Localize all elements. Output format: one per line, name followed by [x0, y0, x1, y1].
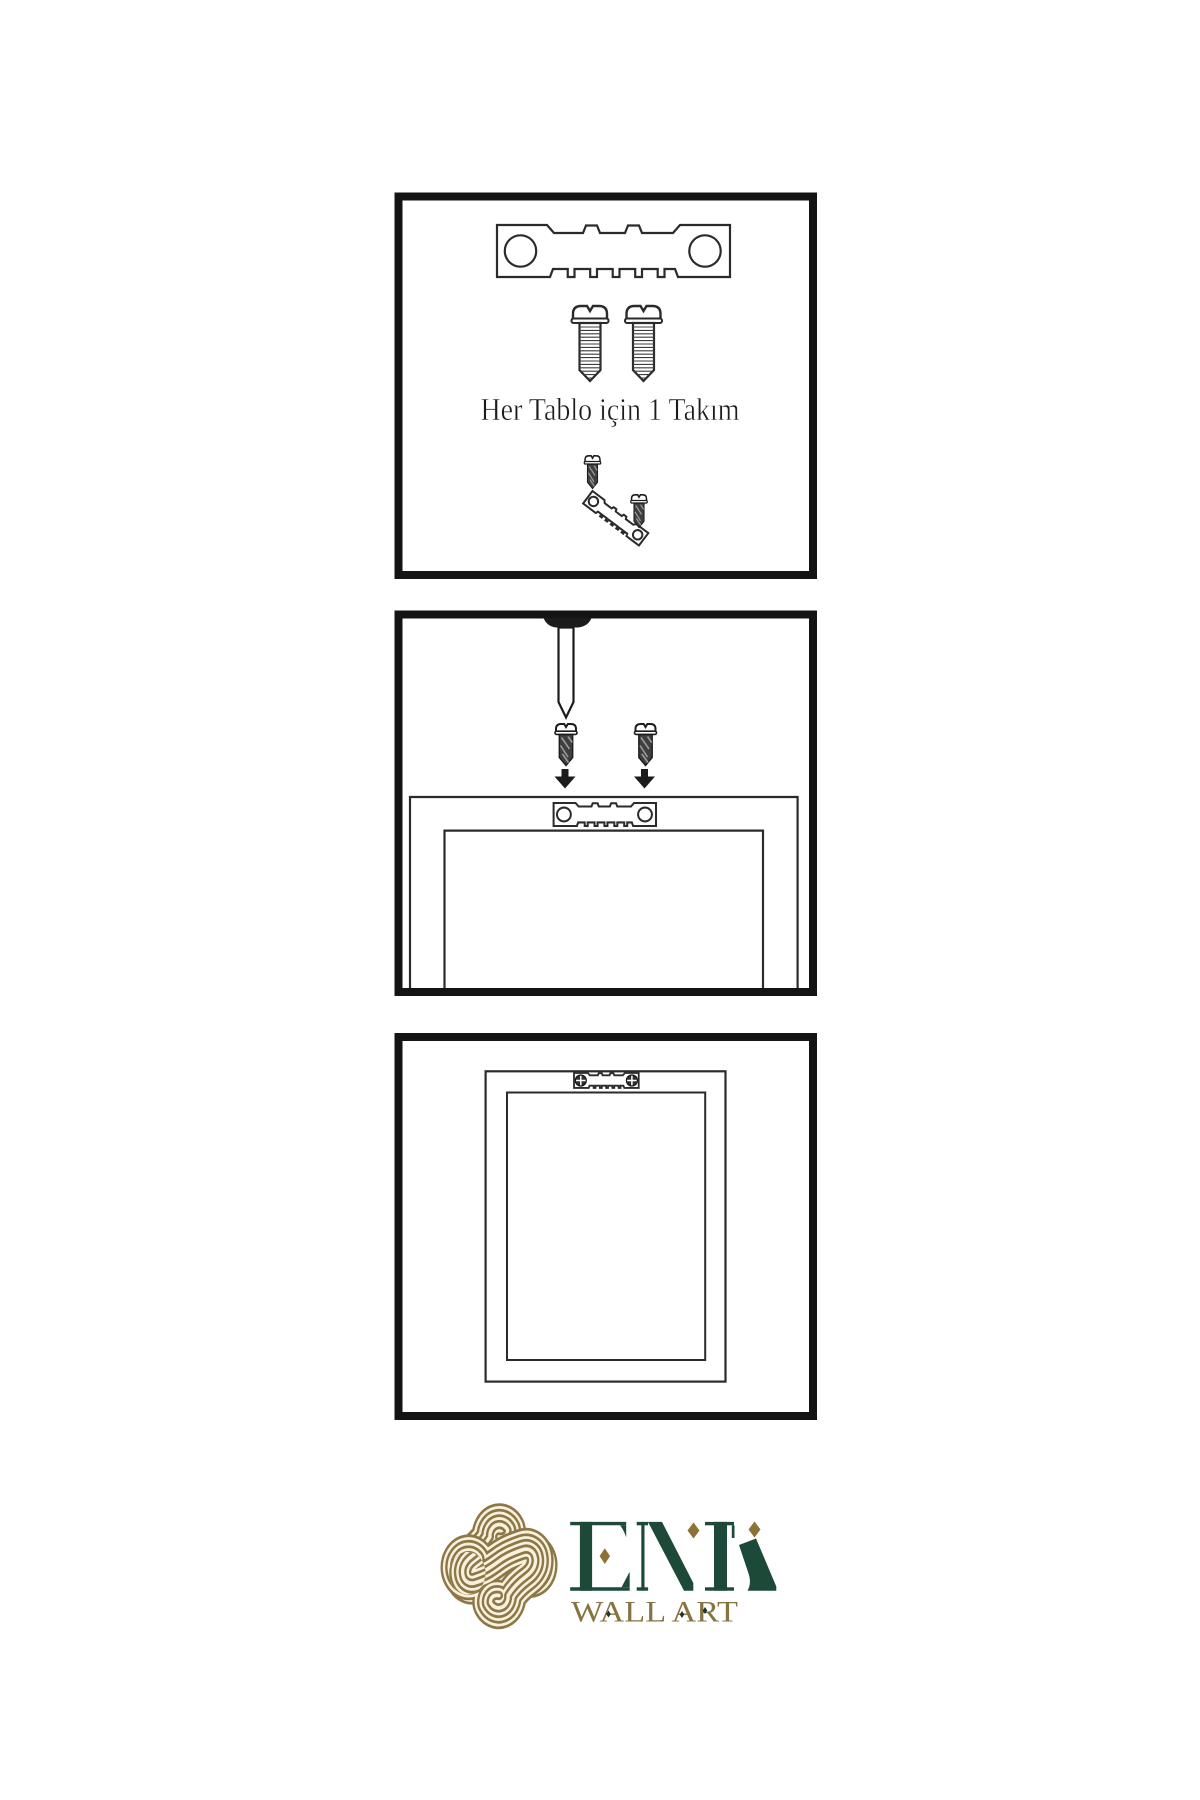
svg-text:Her Tablo için 1 Takım: Her Tablo için 1 Takım [481, 392, 740, 427]
svg-text:WALL ART: WALL ART [571, 1596, 738, 1629]
